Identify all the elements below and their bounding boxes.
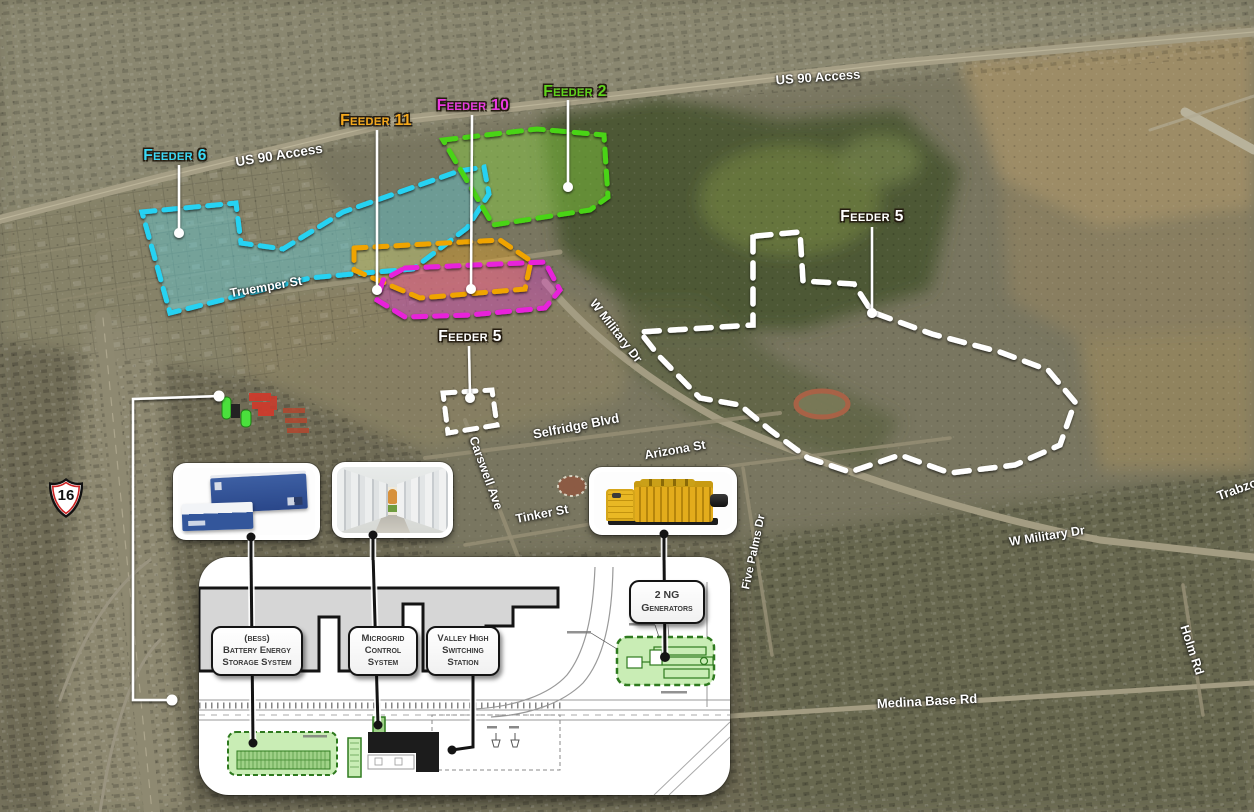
generators-dot — [660, 652, 670, 662]
ng-generators-label: 2 NG Generators — [629, 580, 705, 624]
feeder10-label: Feeder 10 — [437, 97, 510, 115]
battery-container-corridor-photo — [332, 462, 453, 538]
feeder2-callout-dot — [564, 183, 573, 192]
feeder2-label: Feeder 2 — [543, 83, 607, 101]
natural-gas-generator-photo — [589, 467, 737, 535]
feeder11-callout-dot — [373, 286, 382, 295]
relay-unit-front — [182, 502, 254, 531]
feeder5-west-callout-dot — [466, 394, 475, 403]
green-equipment-pad — [348, 738, 361, 777]
site-plan-inset: (BESS) Battery Energy Storage System Mic… — [199, 557, 730, 795]
protection-relays-photo — [173, 463, 320, 540]
generator-alternator — [710, 494, 728, 507]
shield-route-number: 16 — [49, 487, 83, 504]
feeder10-callout-dot — [467, 285, 476, 294]
generator-radiator — [606, 489, 635, 521]
inset-pointer-dot — [167, 695, 177, 705]
tree — [387, 489, 398, 504]
valley-high-dot — [448, 746, 457, 755]
us-16-highway-shield-icon: 16 — [49, 478, 83, 518]
feeder6-callout-dot — [175, 229, 184, 238]
microgrid-control-label: Microgrid Control System — [348, 626, 418, 676]
bess-label: (BESS) Battery Energy Storage System — [211, 626, 303, 676]
valley-high-switching-label: Valley High Switching Station — [426, 626, 500, 676]
bess-zone — [228, 732, 337, 775]
generators-zone — [567, 614, 714, 694]
feeder5-east-callout-dot — [868, 309, 877, 318]
feeder5-west-label: Feeder 5 — [438, 328, 502, 346]
microgrid-feeder-aerial-map: US 90 Access US 90 Access Truemper St W … — [0, 0, 1254, 812]
switchgear-symbols — [487, 726, 519, 747]
site-location-dot — [214, 391, 224, 401]
generator-engine — [634, 481, 713, 522]
bess-dot — [249, 739, 258, 748]
microgrid-dot — [374, 721, 383, 730]
switching-station-building — [368, 732, 439, 772]
feeder11-label: Feeder 11 — [340, 112, 412, 130]
feeder5-east-label: Feeder 5 — [840, 208, 904, 226]
feeder6-label: Feeder 6 — [143, 147, 207, 165]
